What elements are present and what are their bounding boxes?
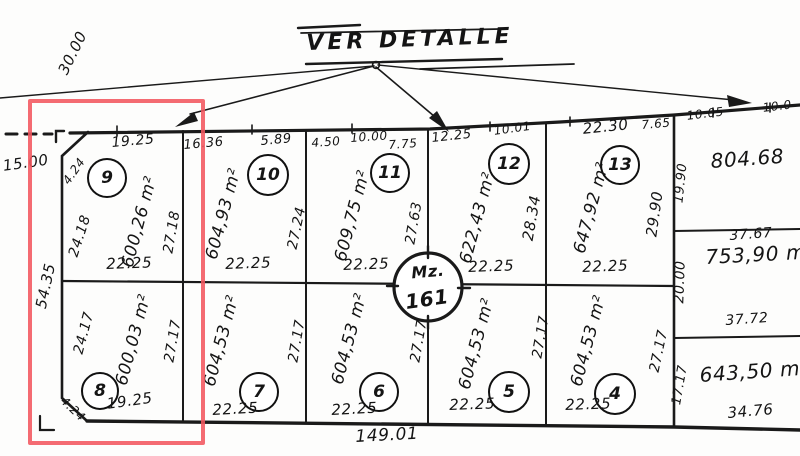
rightlot-753-topdim: 37.67 (729, 226, 773, 243)
dim-rightlot-top1: 7.65 (641, 116, 671, 130)
rightlot-804-area: 804.68 (710, 146, 785, 171)
block-number: 161 (404, 286, 450, 312)
dim-rightlot-top3: 10.0 (762, 98, 792, 113)
dim-lot10-top2: 5.89 (260, 132, 292, 148)
dim-lot10-bottom: 22.25 (225, 255, 271, 272)
dim-lot13-bottom: 22.25 (582, 258, 628, 275)
lot-10-circle: 10 (247, 154, 289, 196)
rightlot-643-area: 643,50 m² (699, 357, 800, 385)
cadastral-plan: VER DETALLE 30.00 15.00 54.35 149.01 19.… (0, 0, 800, 456)
rightlot-804-left: 19.90 (672, 162, 689, 203)
rightlot-753-bottomdim: 37.72 (725, 311, 769, 328)
rightlot-643-bottomdim: 34.76 (727, 402, 774, 421)
lot-10-number: 10 (256, 165, 280, 185)
dim-lot4-bottom: 22.25 (565, 396, 611, 413)
dim-lot11-top1: 4.50 (311, 135, 341, 149)
lot-12-number: 12 (497, 154, 521, 174)
dim-lot11-top2: 10.00 (350, 129, 388, 144)
lot-11-circle: 11 (370, 153, 410, 193)
rightlot-753-left: 20.00 (672, 260, 687, 304)
dim-lot5-bottom: 22.25 (449, 396, 495, 413)
bottom-total-label: 149.01 (355, 426, 419, 446)
highlight-box (28, 99, 205, 445)
dim-lot11-top3: 7.75 (388, 137, 418, 151)
dim-lot12-top1: 12.25 (431, 128, 472, 145)
rightlot-753-area: 753,90 m² (705, 241, 800, 267)
dim-lot7-bottom: 22.25 (212, 401, 259, 418)
dim-lot6-bottom: 22.25 (331, 401, 378, 418)
lot-5-number: 5 (503, 382, 515, 402)
lot-11-number: 11 (378, 163, 402, 183)
block-label: Mz. (411, 263, 445, 282)
